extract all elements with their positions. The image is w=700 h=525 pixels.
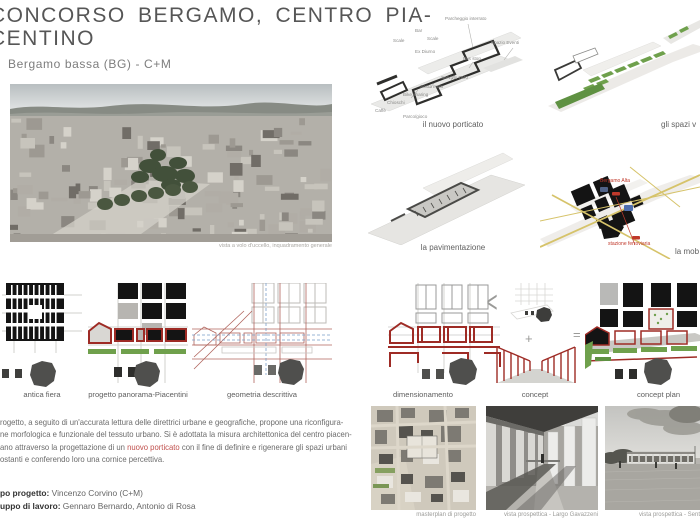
plus-glyph: + [525, 331, 533, 346]
label-scale-1: Scale [393, 38, 405, 43]
pavimentazione-caption: la pavimentazione [403, 243, 503, 252]
masterplan-svg [371, 406, 476, 510]
aerial-render-image [10, 84, 332, 242]
aerial-render-caption: vista a volo d'uccello, inquadramento ge… [10, 243, 332, 249]
page-subtitle: Bergamo bassa (BG) - C+M [8, 57, 171, 71]
parking-badge [600, 187, 608, 192]
diagram-nuovo-porticato: Parcheggio interrato Bar Scale Scale Ex … [363, 8, 540, 138]
nuovo-porticato-caption: il nuovo porticato [403, 120, 503, 129]
equals-glyph: = [573, 327, 581, 342]
parking-badge [624, 205, 633, 211]
credits-label1: po progetto: [0, 488, 49, 498]
concept-sketch-svg [507, 283, 557, 329]
paragraph-line3-post: con il fine di definire e rigenerare gli… [180, 443, 347, 452]
paragraph-line3-pre: ano attraverso la progettazione di un [0, 443, 127, 452]
label-bike-sharing: Bike sharing [403, 92, 428, 97]
blob-shape [134, 361, 160, 387]
photo-portico-perspective: vista prospettica - Largo Gavazzeni [486, 406, 598, 521]
paragraph-line: ano attraverso la progettazione di un nu… [0, 442, 347, 454]
concept-plan-caption: concept plan [637, 390, 680, 399]
masterplan-caption: masterplan di progetto [371, 512, 476, 518]
diagram-pavimentazione: la pavimentazione [363, 145, 540, 260]
aerial-render-svg [10, 84, 332, 242]
diagram-mobilita: Bergamo Alta stazione ferroviaria la mob [540, 147, 700, 262]
label-bus-stop: Bus stop [463, 56, 481, 61]
description-paragraph: rogetto, a seguito di un'accurata lettur… [0, 417, 352, 466]
spazi-verdi-svg [543, 8, 700, 120]
figure-silhouette [675, 463, 677, 469]
dimensionamento-caption: dimensionamento [388, 390, 458, 399]
label-bergamo-alta: Bergamo Alta [600, 178, 630, 184]
diagram-geometria: geometria descrittiva [192, 283, 332, 388]
blob-shape [30, 361, 56, 387]
blob-shape [278, 359, 304, 385]
progetto-panorama-svg [88, 283, 188, 388]
label-spazio-eventi: Spazio Eventi [491, 40, 519, 45]
photo-masterplan: masterplan di progetto [371, 406, 476, 521]
figure-silhouette [619, 461, 621, 468]
credits-line1: po progetto: Vincenzo Corvino (C+M) [0, 487, 196, 500]
label-stazione-ferroviaria: stazione ferroviaria [608, 241, 650, 247]
photo-piazza-perspective: vista prospettica - Sent [605, 406, 700, 521]
geometria-caption: geometria descrittiva [192, 390, 332, 399]
label-parco-gioco: Parco/gioco [403, 114, 427, 119]
label-parcheggio-interrato: Parcheggio interrato [445, 16, 486, 21]
label-sosta-moto: Sosta moto [420, 84, 443, 89]
credits-line2: uppo di lavoro: Gennaro Bernardo, Antoni… [0, 500, 196, 513]
credits-label2: uppo di lavoro: [0, 501, 60, 511]
concept-portico-svg [487, 345, 583, 387]
paragraph-line: rogetto, a seguito di un'accurata lettur… [0, 417, 343, 429]
geometria-svg [192, 283, 332, 388]
label-bar: Bar [415, 28, 422, 33]
portico-perspective-svg [486, 406, 598, 510]
figure-silhouette [655, 462, 657, 468]
car-icon [632, 236, 640, 240]
label-ex-diurno: Ex Diurno [415, 49, 435, 54]
mobilita-caption: la mob [675, 247, 700, 256]
paragraph-line3-highlight: nuovo porticato [127, 443, 180, 452]
pavimentazione-svg [363, 145, 540, 245]
spazi-verdi-caption: gli spazi v [661, 120, 700, 129]
antica-fiera-svg [2, 283, 82, 388]
diagram-progetto-panorama: progetto panorama-Piacentini [88, 283, 188, 388]
portico-perspective-caption: vista prospettica - Largo Gavazzeni [486, 512, 598, 518]
credits-value2: Gennaro Bernardo, Antonio di Rosa [60, 501, 195, 511]
antica-fiera-caption: antica fiera [2, 390, 82, 399]
figure-silhouette [541, 454, 544, 463]
piazza-perspective-caption: vista prospettica - Sent [605, 512, 700, 518]
diagram-antica-fiera: antica fiera [2, 283, 82, 388]
car-icon [612, 192, 620, 196]
credits-block: po progetto: Vincenzo Corvino (C+M) uppo… [0, 487, 196, 513]
blob-shape [536, 307, 552, 322]
label-scale-2: Scale [427, 36, 439, 41]
paragraph-line: ne morfologica e funzionale del tessuto … [0, 429, 352, 441]
less-than-glyph: < [486, 286, 497, 321]
blob-shape [644, 358, 672, 385]
concept-caption: concept [485, 390, 585, 399]
progetto-panorama-caption: progetto panorama-Piacentini [82, 390, 194, 399]
blob-shape [449, 358, 477, 385]
diagram-spazi-verdi: gli spazi v [543, 8, 700, 138]
paragraph-line: ostanti e conferendo loro una cornice pe… [0, 454, 164, 466]
concept-plan-svg [585, 283, 700, 388]
credits-value1: Vincenzo Corvino (C+M) [49, 488, 143, 498]
label-caffe: Caffè [375, 108, 386, 113]
label-chioschi: Chioschi [387, 100, 405, 105]
piazza-perspective-svg [605, 406, 700, 510]
label-servizio-taxi: Servizio TAXI [441, 75, 468, 80]
diagram-concept-plan: concept plan [585, 283, 700, 388]
